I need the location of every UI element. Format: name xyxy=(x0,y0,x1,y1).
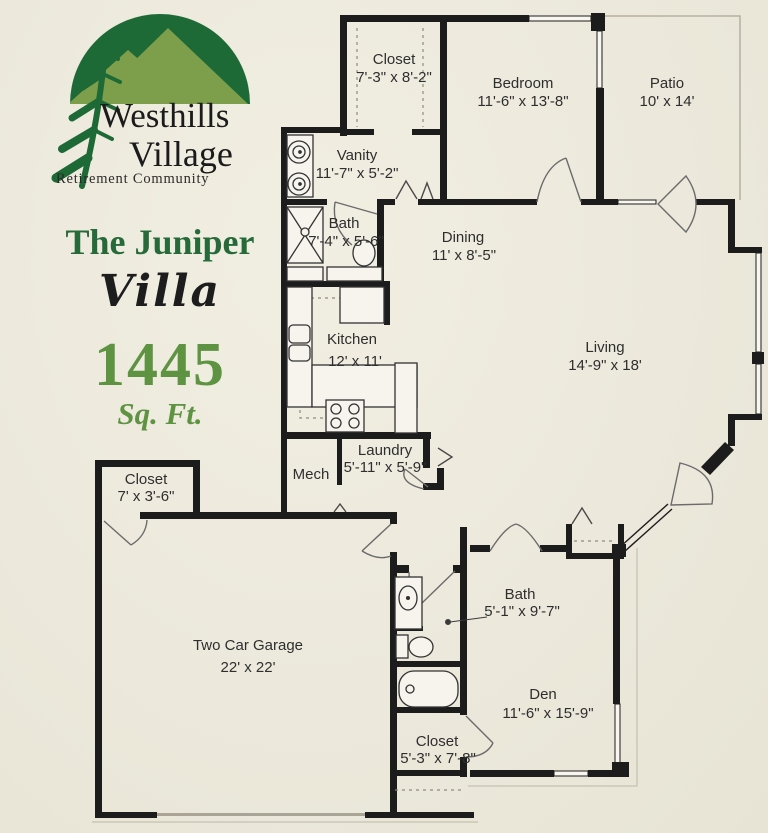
svg-text:11'-6" x 15'-9": 11'-6" x 15'-9" xyxy=(502,705,593,722)
square-footage-value: 1445 xyxy=(35,330,285,401)
floor-plan-flyer: Closet 7'-3" x 8'-2" Bedroom 11'-6" x 13… xyxy=(0,0,768,833)
garage-door xyxy=(157,813,365,816)
room-label-mech: Mech xyxy=(293,466,330,483)
chamfer-window xyxy=(620,504,672,552)
svg-text:Closet: Closet xyxy=(373,51,416,68)
svg-text:Dining: Dining xyxy=(442,229,485,246)
square-footage-label: Sq. Ft. xyxy=(35,396,285,432)
room-label-den: Den 11'-6" x 15'-9" xyxy=(502,686,593,722)
room-label-closet-master: Closet 7'-3" x 8'-2" xyxy=(356,51,432,86)
room-label-vanity: Vanity 11'-7" x 5'-2" xyxy=(316,147,399,182)
plan-type-title: Villa xyxy=(35,266,285,317)
bathtub-icon xyxy=(399,671,458,707)
logo-title-line1: Westhills xyxy=(100,96,229,136)
svg-text:22' x 22': 22' x 22' xyxy=(221,659,276,676)
logo-tagline: Retirement Community xyxy=(56,171,209,188)
logo-title-line2: Village xyxy=(129,133,233,175)
svg-text:11'-7" x 5'-2": 11'-7" x 5'-2" xyxy=(316,165,399,182)
svg-text:Closet: Closet xyxy=(125,471,168,488)
svg-text:Closet: Closet xyxy=(416,733,459,750)
svg-text:Laundry: Laundry xyxy=(358,442,413,459)
room-label-bedroom: Bedroom 11'-6" x 13'-8" xyxy=(477,75,568,110)
room-label-laundry: Laundry 5'-11" x 5'-9" xyxy=(344,442,427,476)
svg-text:11' x 8'-5": 11' x 8'-5" xyxy=(432,247,496,264)
svg-text:Bath: Bath xyxy=(329,215,360,232)
room-label-closet-den: Closet 5'-3" x 7'-8" xyxy=(400,733,476,767)
room-label-bath2: Bath 5'-1" x 9'-7" xyxy=(484,586,560,620)
room-label-closet-garage: Closet 7' x 3'-6" xyxy=(118,471,175,505)
refrigerator-icon xyxy=(395,363,417,433)
svg-text:5'-3" x 7'-8": 5'-3" x 7'-8" xyxy=(400,750,476,767)
svg-text:7'-4" x 5'-6": 7'-4" x 5'-6" xyxy=(308,233,384,250)
room-label-patio: Patio 10' x 14' xyxy=(640,75,695,110)
room-label-living: Living 14'-9" x 18' xyxy=(568,339,642,374)
svg-text:Bedroom: Bedroom xyxy=(493,75,554,92)
stove-icon xyxy=(326,400,364,432)
svg-text:Patio: Patio xyxy=(650,75,684,92)
toilet2-icon xyxy=(396,635,433,658)
svg-text:14'-9" x 18': 14'-9" x 18' xyxy=(568,357,642,374)
bath-cabinets xyxy=(287,267,382,281)
svg-text:12' x 11': 12' x 11' xyxy=(328,353,382,370)
branding-block: Westhills Village Retirement Community T… xyxy=(0,0,300,460)
svg-text:5'-11" x 5'-9": 5'-11" x 5'-9" xyxy=(344,459,427,476)
room-label-kitchen: Kitchen 12' x 11' xyxy=(327,331,382,370)
plan-name-title: The Juniper xyxy=(35,221,285,263)
svg-text:7'-3" x 8'-2": 7'-3" x 8'-2" xyxy=(356,69,432,86)
svg-text:Two Car Garage: Two Car Garage xyxy=(193,637,303,654)
svg-text:Kitchen: Kitchen xyxy=(327,331,377,348)
svg-text:7' x 3'-6": 7' x 3'-6" xyxy=(118,488,175,505)
fixtures xyxy=(287,135,458,707)
svg-text:Living: Living xyxy=(585,339,624,356)
svg-text:5'-1" x 9'-7": 5'-1" x 9'-7" xyxy=(484,603,560,620)
windows xyxy=(529,16,761,776)
svg-text:11'-6" x 13'-8": 11'-6" x 13'-8" xyxy=(477,93,568,110)
svg-text:Mech: Mech xyxy=(293,466,330,483)
room-label-dining: Dining 11' x 8'-5" xyxy=(432,229,496,264)
svg-text:Bath: Bath xyxy=(505,586,536,603)
svg-text:Den: Den xyxy=(529,686,557,703)
bath2-sink-icon xyxy=(399,586,417,610)
roof-offset-lines xyxy=(92,548,637,822)
svg-text:Vanity: Vanity xyxy=(337,147,378,164)
kitchen-pantry-counter xyxy=(340,287,384,323)
svg-text:10' x 14': 10' x 14' xyxy=(640,93,695,110)
room-label-garage: Two Car Garage 22' x 22' xyxy=(193,637,303,676)
